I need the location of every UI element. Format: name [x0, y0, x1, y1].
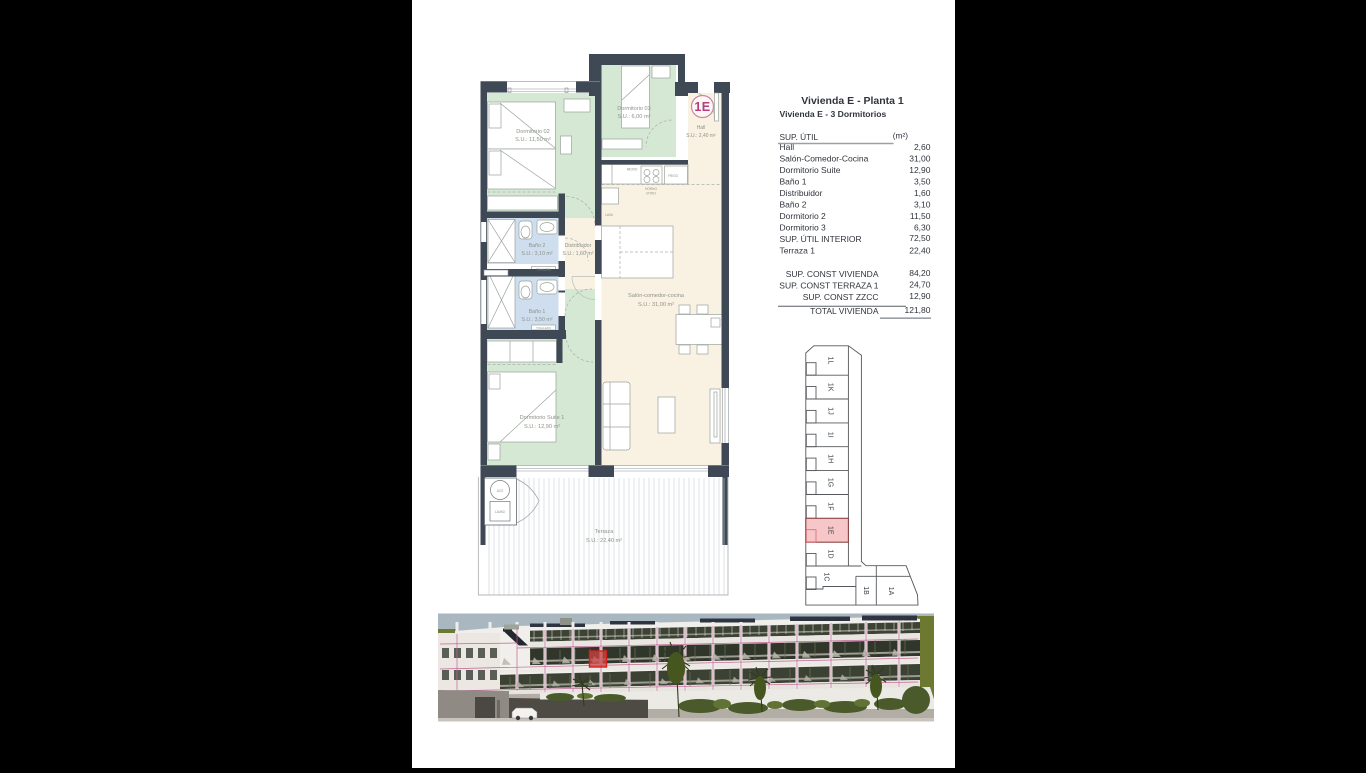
- svg-text:1L: 1L: [827, 357, 834, 365]
- svg-text:Vivienda E - 3 Dormitorios: Vivienda E - 3 Dormitorios: [780, 109, 887, 119]
- svg-text:Baño 2: Baño 2: [780, 199, 807, 209]
- svg-text:S.U.: 22,40 m²: S.U.: 22,40 m²: [586, 538, 622, 544]
- svg-text:Dormitorio 2: Dormitorio 2: [780, 211, 827, 221]
- svg-text:Salón-Comedor-Cocina: Salón-Comedor-Cocina: [780, 153, 869, 163]
- svg-text:1F: 1F: [827, 502, 834, 510]
- svg-text:Salón-comedor-cocina: Salón-comedor-cocina: [628, 293, 685, 299]
- svg-text:1E: 1E: [694, 100, 710, 114]
- svg-text:11,50: 11,50: [910, 211, 931, 221]
- svg-text:Hall: Hall: [697, 125, 706, 131]
- svg-text:(m²): (m²): [893, 131, 908, 141]
- svg-text:84,20: 84,20: [909, 268, 931, 278]
- svg-text:1I: 1I: [827, 432, 834, 438]
- svg-text:121,80: 121,80: [905, 305, 931, 315]
- svg-text:1K: 1K: [827, 383, 834, 392]
- svg-text:SUP. ÚTIL INTERIOR: SUP. ÚTIL INTERIOR: [780, 234, 862, 244]
- svg-text:1H: 1H: [827, 454, 834, 463]
- svg-text:S.U.: 6,00 m²: S.U.: 6,00 m²: [618, 114, 651, 120]
- svg-text:12,90: 12,90: [909, 165, 931, 175]
- svg-text:1D: 1D: [827, 550, 834, 559]
- svg-text:Vivienda E - Planta 1: Vivienda E - Planta 1: [801, 95, 904, 107]
- svg-text:TOALLERO: TOALLERO: [536, 326, 552, 330]
- svg-text:SUP. ÚTIL: SUP. ÚTIL: [780, 132, 819, 142]
- svg-text:S.U.: 31,00 m²: S.U.: 31,00 m²: [638, 302, 674, 308]
- svg-text:Terraza 1: Terraza 1: [780, 245, 816, 255]
- svg-text:Baño 2: Baño 2: [529, 243, 546, 249]
- svg-text:Baño 1: Baño 1: [780, 176, 807, 186]
- svg-text:6,30: 6,30: [914, 222, 931, 232]
- svg-text:S.U.: 3,10 m²: S.U.: 3,10 m²: [521, 251, 552, 257]
- svg-text:Dormitorio 02: Dormitorio 02: [516, 129, 550, 135]
- svg-text:S.U.: 3,50 m²: S.U.: 3,50 m²: [521, 317, 552, 323]
- svg-text:1C: 1C: [823, 573, 830, 582]
- svg-text:24,70: 24,70: [909, 280, 931, 290]
- svg-text:FRIGO: FRIGO: [668, 174, 679, 178]
- svg-text:SUP. CONST ZZCC: SUP. CONST ZZCC: [803, 292, 879, 302]
- svg-text:S.U.: 11,50 m²: S.U.: 11,50 m²: [515, 137, 551, 143]
- svg-text:LAVA: LAVA: [605, 213, 614, 217]
- svg-text:31,00: 31,00: [909, 153, 931, 163]
- svg-text:S.U.: 2,40 m²: S.U.: 2,40 m²: [686, 133, 716, 139]
- svg-text:1,60: 1,60: [914, 188, 931, 198]
- svg-text:Dormitorio 3: Dormitorio 3: [780, 222, 827, 232]
- svg-text:Terraza: Terraza: [595, 529, 615, 535]
- svg-text:Baño 1: Baño 1: [529, 309, 546, 315]
- svg-text:S.U.: 1,60 m²: S.U.: 1,60 m²: [562, 251, 593, 257]
- svg-text:Distribuidor: Distribuidor: [780, 188, 823, 198]
- svg-text:3,50: 3,50: [914, 176, 931, 186]
- svg-text:TOALLERO: TOALLERO: [536, 268, 552, 272]
- svg-text:1B: 1B: [862, 586, 869, 595]
- svg-text:MICRO: MICRO: [627, 168, 638, 172]
- svg-text:22,40: 22,40: [909, 245, 931, 255]
- svg-text:Dormitorio Suite: Dormitorio Suite: [780, 165, 841, 175]
- svg-text:Distribuidor: Distribuidor: [565, 243, 592, 249]
- svg-text:Dormitorio 03: Dormitorio 03: [617, 106, 651, 112]
- svg-text:1A: 1A: [887, 587, 894, 596]
- svg-text:2,60: 2,60: [914, 142, 931, 152]
- svg-text:1G: 1G: [827, 478, 834, 487]
- svg-text:SUP. CONST TERRAZA 1: SUP. CONST TERRAZA 1: [779, 281, 878, 291]
- svg-text:SUP. CONST VIVIENDA: SUP. CONST VIVIENDA: [786, 269, 879, 279]
- svg-text:HORNO: HORNO: [645, 187, 657, 191]
- svg-text:1E: 1E: [827, 526, 834, 535]
- svg-text:Dormitorio Suite 1: Dormitorio Suite 1: [520, 415, 565, 421]
- svg-text:3,10: 3,10: [914, 199, 931, 209]
- svg-text:ACS: ACS: [497, 489, 504, 493]
- svg-text:72,50: 72,50: [909, 233, 931, 243]
- svg-text:LAVAD: LAVAD: [495, 510, 506, 514]
- svg-text:12,90: 12,90: [909, 291, 931, 301]
- svg-text:VITRO: VITRO: [646, 192, 656, 196]
- svg-text:TOTAL VIVIENDA: TOTAL VIVIENDA: [810, 306, 879, 316]
- svg-text:1J: 1J: [827, 407, 834, 414]
- svg-text:S.U.: 12,90 m²: S.U.: 12,90 m²: [524, 424, 560, 430]
